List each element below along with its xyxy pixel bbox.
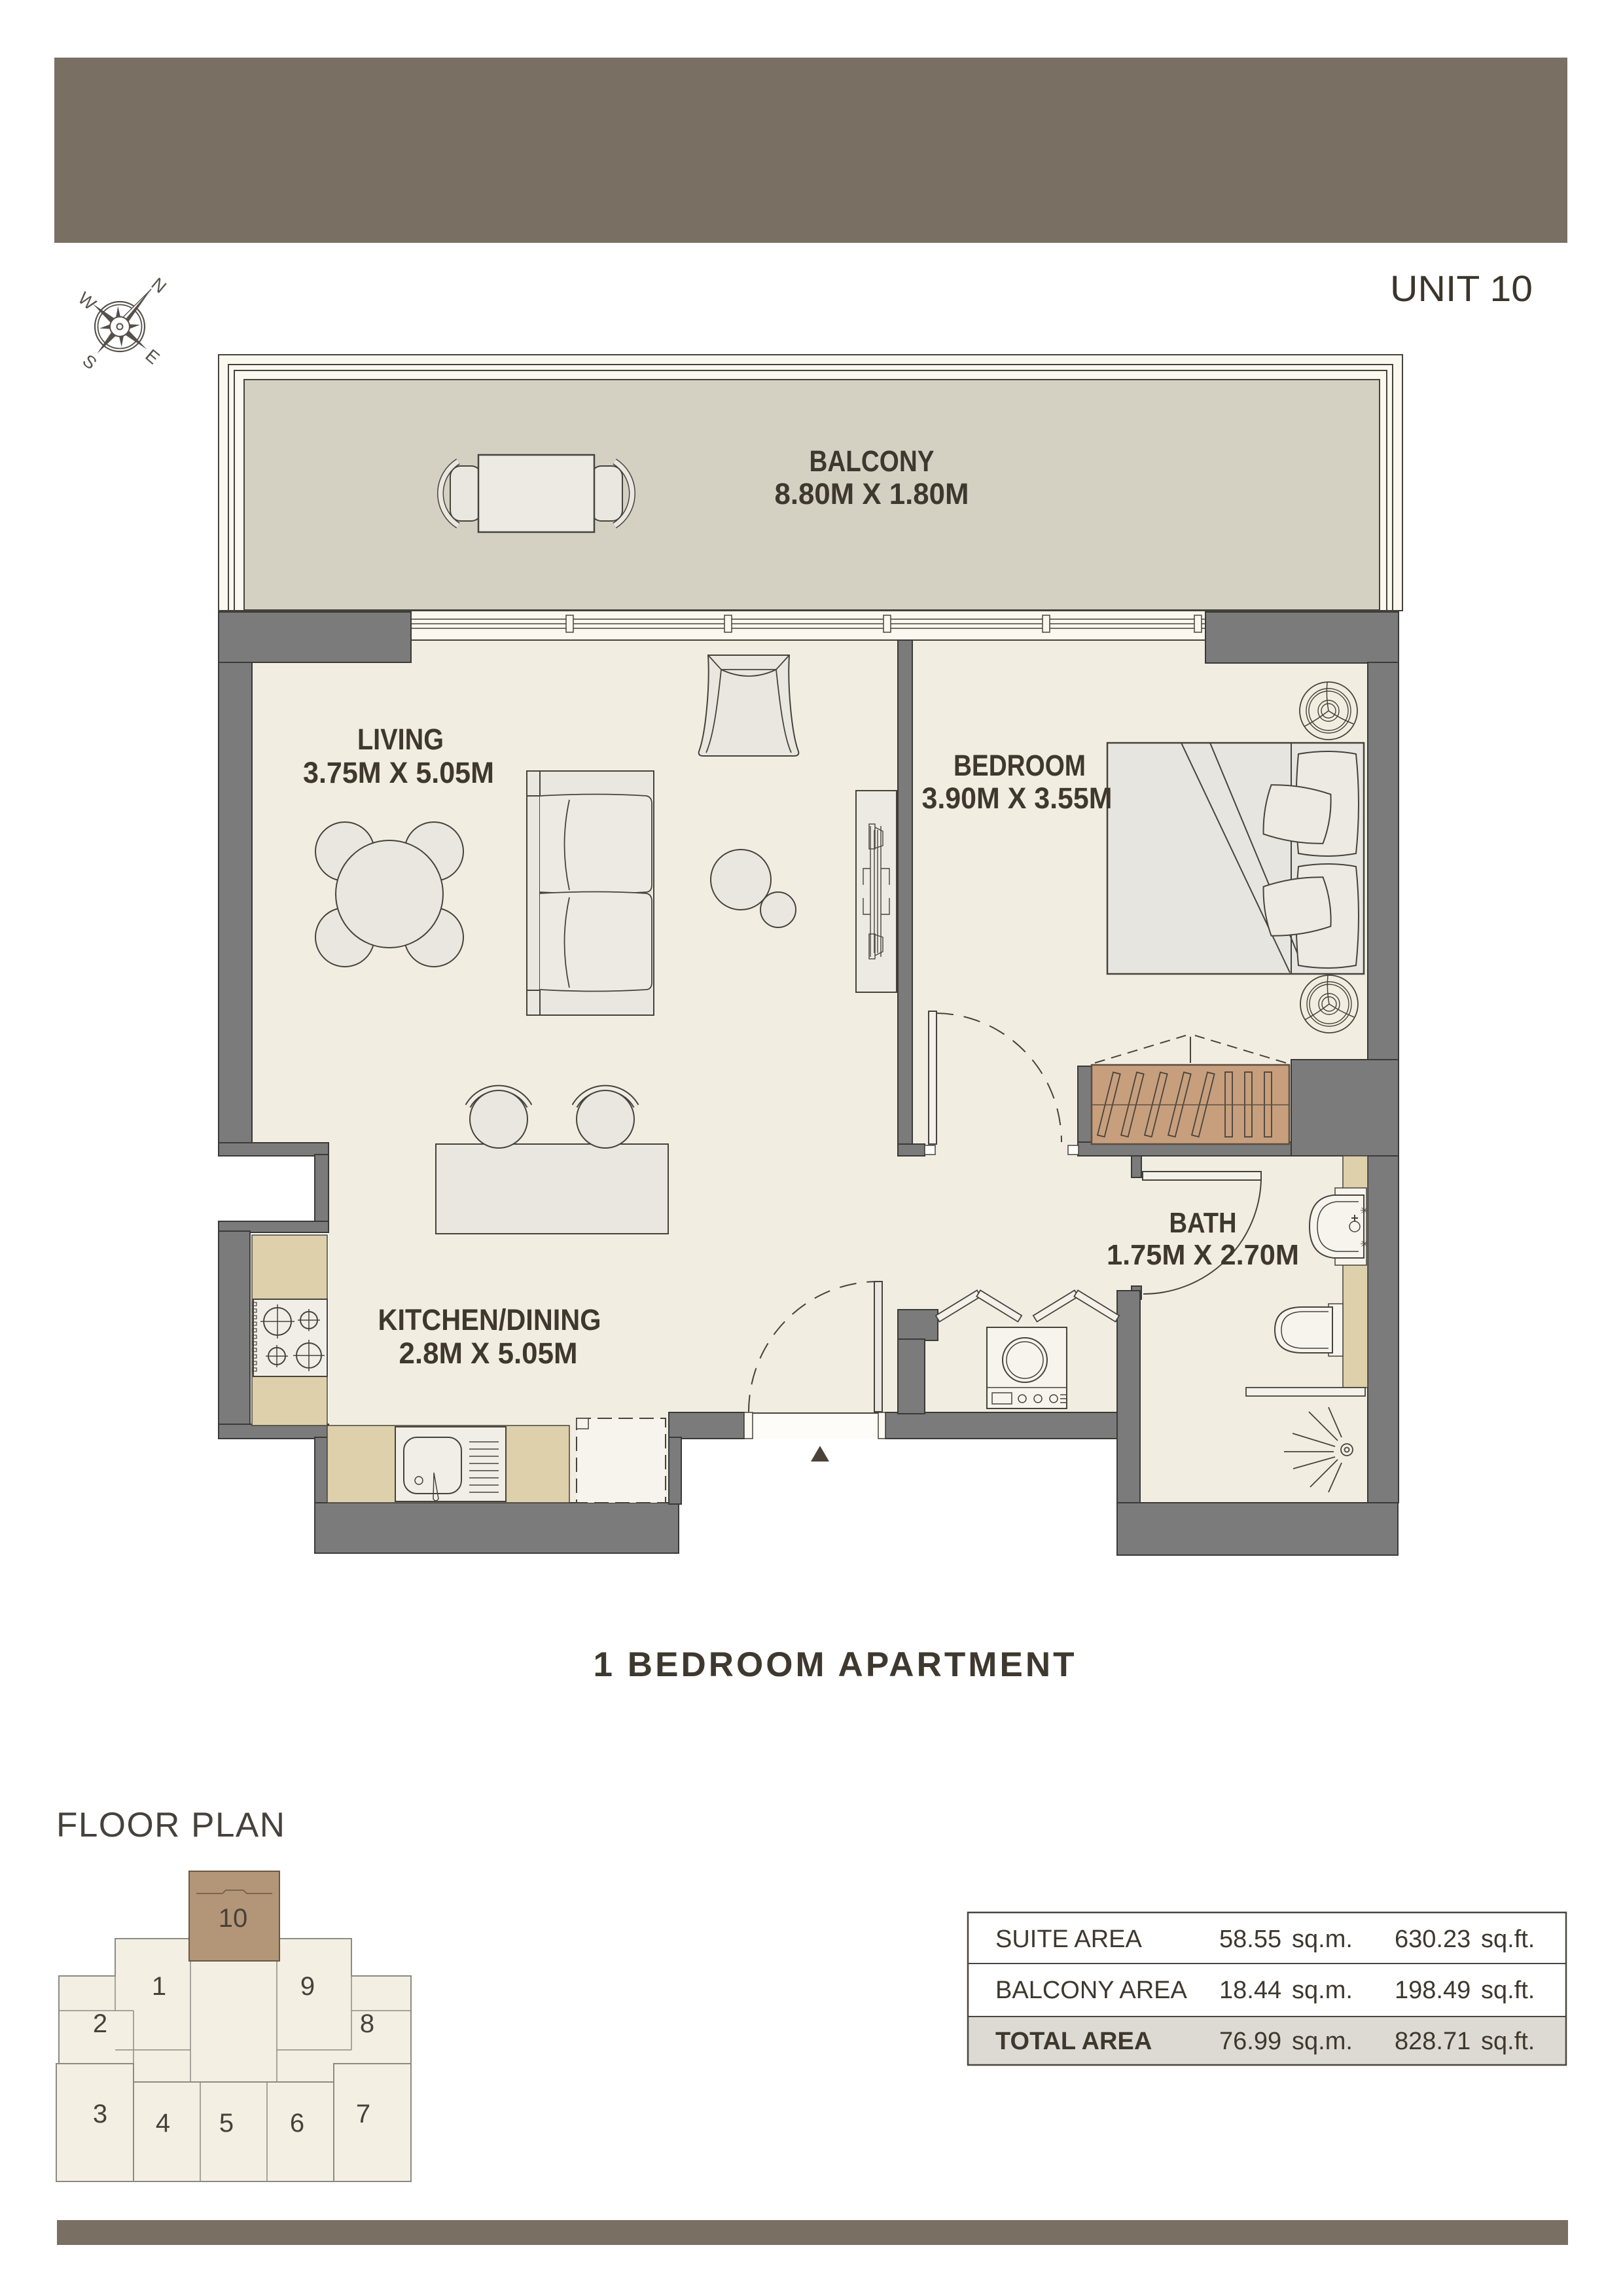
svg-text:6: 6 (290, 2109, 304, 2138)
svg-text:3.90M X 3.55M: 3.90M X 3.55M (922, 781, 1113, 815)
svg-text:sq.m.: sq.m. (1292, 2028, 1353, 2055)
svg-text:8: 8 (360, 2009, 374, 2038)
svg-text:BATH: BATH (1169, 1207, 1237, 1239)
svg-text:2: 2 (93, 2009, 107, 2038)
svg-text:1 BEDROOM APARTMENT: 1 BEDROOM APARTMENT (594, 1645, 1075, 1684)
svg-text:7: 7 (356, 2100, 370, 2128)
svg-text:198.49: 198.49 (1395, 1977, 1471, 2004)
svg-text:KITCHEN/DINING: KITCHEN/DINING (378, 1303, 601, 1336)
svg-text:✳: ✳ (1360, 1206, 1368, 1217)
svg-text:3.75M X 5.05M: 3.75M X 5.05M (303, 756, 494, 789)
svg-text:10: 10 (219, 1904, 248, 1933)
svg-text:sq.ft.: sq.ft. (1481, 1977, 1535, 2004)
svg-text:sq.ft.: sq.ft. (1481, 1926, 1535, 1953)
svg-text:BALCONY: BALCONY (810, 444, 935, 478)
svg-text:LIVING: LIVING (357, 723, 444, 756)
svg-text:8.80M X 1.80M: 8.80M X 1.80M (775, 477, 969, 511)
svg-text:2.8M X 5.05M: 2.8M X 5.05M (399, 1336, 578, 1370)
svg-text:sq.m.: sq.m. (1292, 1926, 1353, 1953)
svg-text:630.23: 630.23 (1395, 1926, 1471, 1953)
svg-text:5: 5 (219, 2109, 234, 2138)
svg-text:4: 4 (156, 2109, 170, 2138)
svg-text:58.55: 58.55 (1219, 1926, 1281, 1953)
svg-text:FLOOR PLAN: FLOOR PLAN (56, 1806, 285, 1844)
svg-text:BALCONY AREA: BALCONY AREA (995, 1977, 1188, 2004)
svg-text:76.99: 76.99 (1219, 2028, 1281, 2055)
svg-text:1.75M X 2.70M: 1.75M X 2.70M (1107, 1239, 1299, 1271)
svg-text:UNIT 10: UNIT 10 (1390, 268, 1533, 309)
svg-text:sq.ft.: sq.ft. (1481, 2028, 1535, 2055)
svg-text:18.44: 18.44 (1219, 1977, 1281, 2004)
svg-text:SUITE AREA: SUITE AREA (995, 1926, 1142, 1953)
svg-text:sq.m.: sq.m. (1292, 1977, 1353, 2004)
svg-text:3: 3 (93, 2100, 107, 2128)
svg-text:BEDROOM: BEDROOM (954, 749, 1086, 782)
svg-text:9: 9 (300, 1972, 315, 2001)
svg-text:TOTAL AREA: TOTAL AREA (995, 2028, 1152, 2055)
svg-text:1: 1 (152, 1972, 166, 2001)
svg-text:✳: ✳ (1360, 1239, 1368, 1250)
svg-text:828.71: 828.71 (1395, 2028, 1471, 2055)
